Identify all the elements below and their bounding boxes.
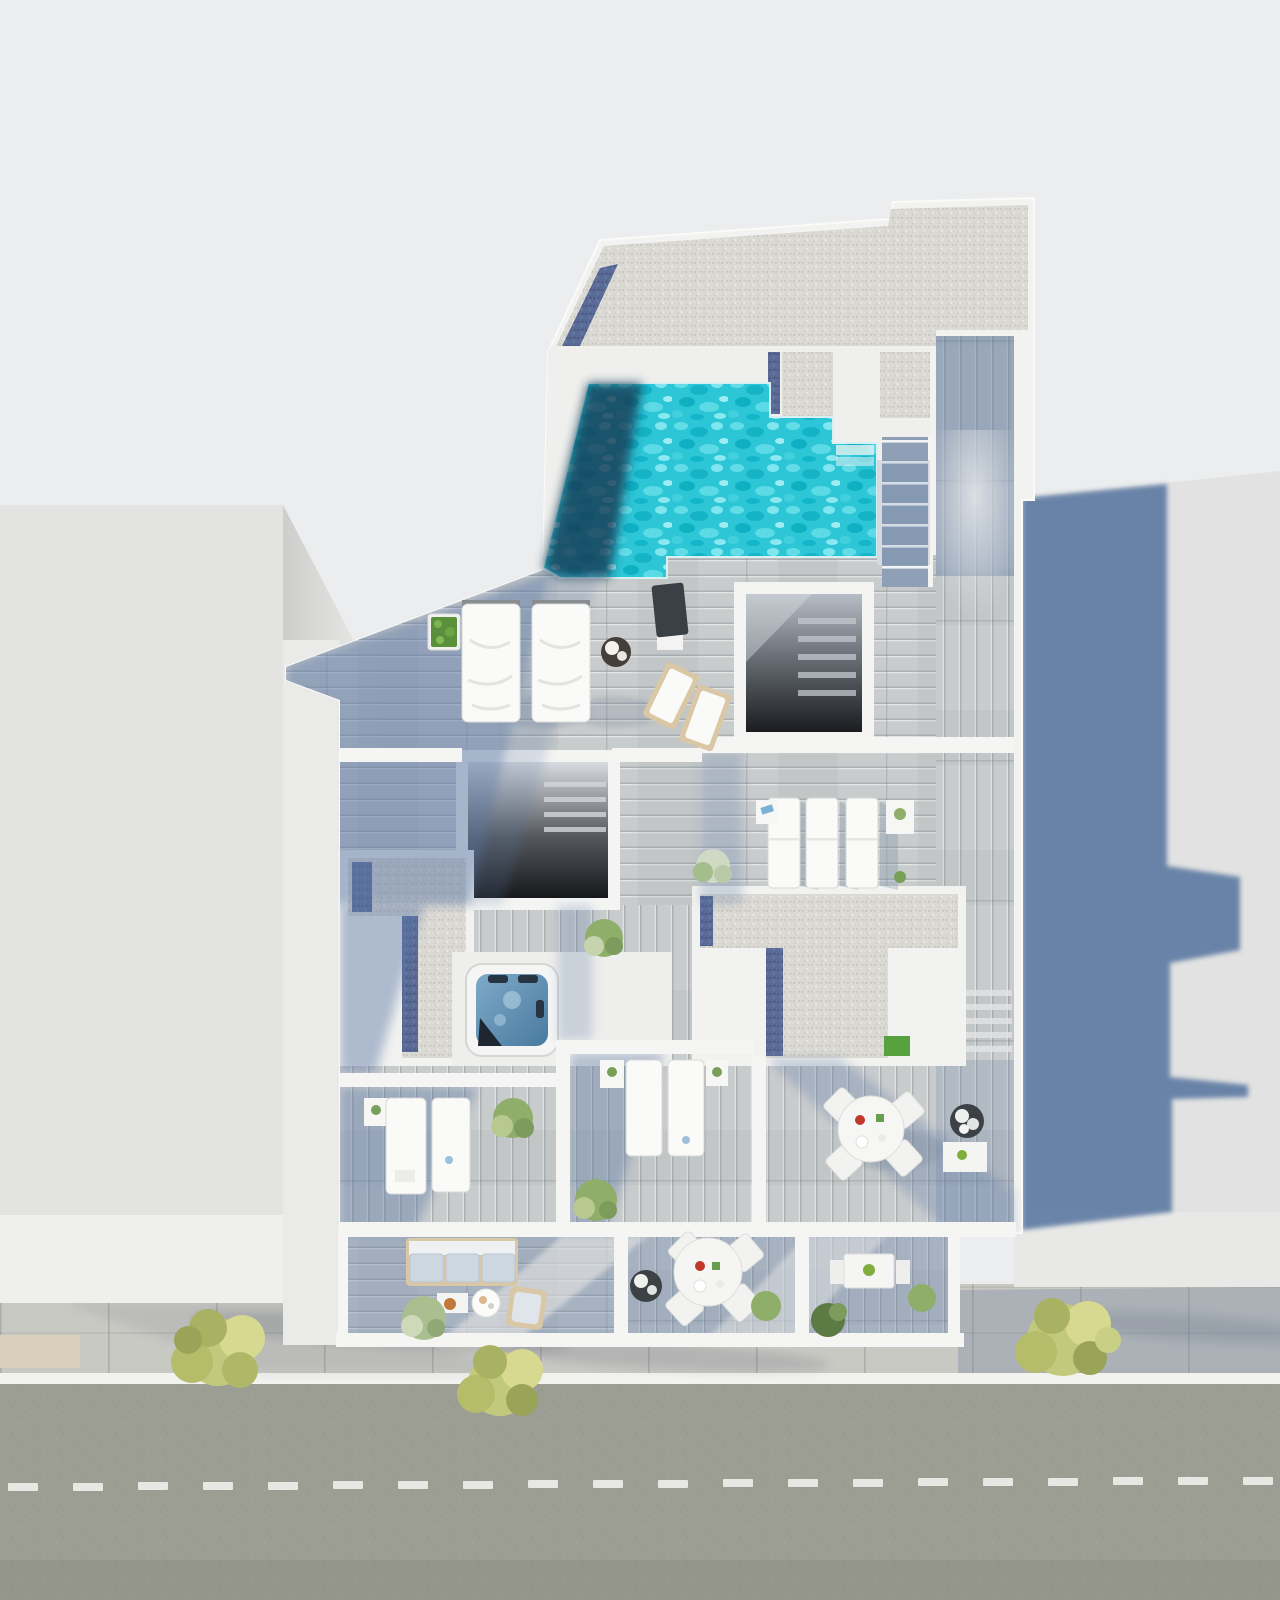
gravel-block-a [782,352,833,417]
tactile-paving [0,1335,80,1368]
chair [896,1260,910,1284]
chair [830,1260,844,1284]
sun-lounger [432,1098,470,1192]
sofa-cushion [446,1254,479,1282]
pool-steps [836,457,874,466]
table-item-red [855,1115,865,1125]
road-edge-shade [0,1560,1280,1600]
shrub [751,1291,781,1321]
sun-lounger [626,1060,662,1156]
sun-lounger [806,798,838,888]
side-corridor [936,336,1014,1233]
table-item-green [876,1114,884,1122]
dining-table-round [674,1238,742,1306]
stairwell-opening-right [734,582,874,744]
sun-bed [462,604,520,722]
grass-patch [884,1036,910,1056]
gravel-block-b [880,352,930,418]
gravel-roof-T [692,886,966,1066]
pool-steps [836,445,874,455]
lounger-row [756,798,914,890]
shrub [908,1284,936,1312]
planter [630,1270,662,1302]
apple [957,1150,967,1160]
aerial-render-canvas [0,0,1280,1600]
potted-plant [894,808,906,820]
dining-table-round [838,1096,904,1162]
potted-plant [894,871,906,883]
sun-lounger [846,798,878,888]
sidewalk-shadow-right [958,1287,1280,1373]
planter-box [428,614,460,650]
towel-basket [601,637,631,667]
sofa-cushion [482,1254,515,1282]
bowl [444,1298,456,1310]
potted-plant [863,1264,875,1276]
aerial-render [0,0,1280,1600]
sofa-back [409,1241,515,1255]
neighbor-building-left [0,505,365,1345]
sun-bed [532,604,590,722]
alley-strip [283,640,340,1345]
sofa-cushion [410,1254,443,1282]
round-side-table [472,1289,500,1317]
